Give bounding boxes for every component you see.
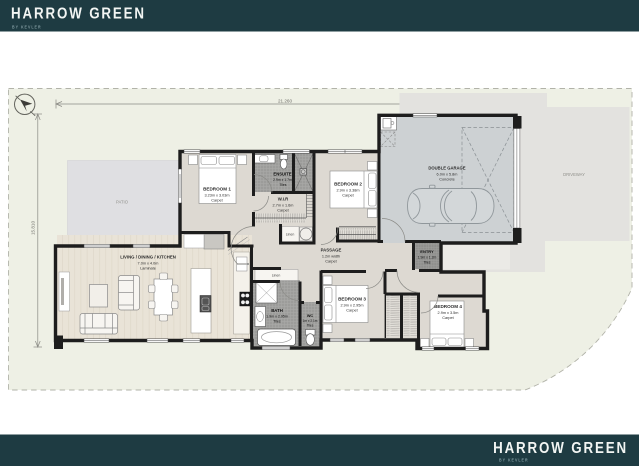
- svg-text:1.2m width: 1.2m width: [322, 254, 340, 258]
- svg-text:1.9m x 2.95m: 1.9m x 2.95m: [266, 315, 288, 319]
- svg-text:21.260: 21.260: [278, 99, 292, 104]
- svg-text:PASSAGE: PASSAGE: [321, 248, 342, 253]
- svg-text:Linen: Linen: [286, 233, 295, 237]
- svg-text:1m x 2.1m: 1m x 2.1m: [303, 319, 318, 323]
- svg-text:ENTRY: ENTRY: [420, 249, 434, 254]
- svg-text:BEDROOM 3: BEDROOM 3: [338, 297, 366, 302]
- svg-text:BEDROOM 1: BEDROOM 1: [203, 187, 231, 192]
- svg-text:WC: WC: [307, 314, 314, 318]
- svg-text:W.I.R: W.I.R: [278, 197, 289, 202]
- svg-text:Carpet: Carpet: [346, 309, 358, 313]
- svg-text:7.0m x 4.0m: 7.0m x 4.0m: [138, 262, 159, 266]
- svg-text:Carpet: Carpet: [325, 259, 337, 263]
- svg-text:HARROW GREEN: HARROW GREEN: [493, 440, 628, 457]
- svg-text:ENSUITE: ENSUITE: [273, 172, 291, 177]
- svg-text:2.9m x 1.7m: 2.9m x 1.7m: [273, 178, 292, 182]
- svg-text:BEDROOM 4: BEDROOM 4: [434, 304, 462, 309]
- svg-text:Carpet: Carpet: [342, 194, 354, 198]
- svg-text:Tiles: Tiles: [273, 319, 281, 323]
- svg-text:2.9m x 3.5m: 2.9m x 3.5m: [438, 311, 459, 315]
- svg-text:BY KEVLER: BY KEVLER: [12, 24, 42, 30]
- svg-text:Carpet: Carpet: [211, 199, 223, 203]
- svg-text:Linen: Linen: [272, 274, 281, 278]
- svg-text:2.9m x 2.95m: 2.9m x 2.95m: [340, 304, 363, 308]
- svg-text:Tiles: Tiles: [279, 183, 286, 187]
- svg-text:Concrete: Concrete: [439, 178, 454, 182]
- svg-text:BEDROOM 2: BEDROOM 2: [334, 182, 362, 187]
- svg-text:Carpet: Carpet: [277, 209, 289, 213]
- svg-text:LIVING / DINING / KITCHEN: LIVING / DINING / KITCHEN: [120, 255, 176, 260]
- svg-text:PATIO: PATIO: [116, 200, 129, 205]
- svg-text:Carpet: Carpet: [442, 316, 454, 320]
- svg-text:15.810: 15.810: [31, 221, 36, 235]
- svg-text:1.9m x 1.2m: 1.9m x 1.2m: [418, 256, 437, 260]
- svg-text:Tiles: Tiles: [307, 324, 314, 328]
- svg-text:Laminate: Laminate: [140, 267, 156, 271]
- svg-text:Tiles: Tiles: [423, 260, 430, 264]
- svg-text:3.23m x 3.03m: 3.23m x 3.03m: [204, 194, 229, 198]
- svg-text:BATH: BATH: [271, 308, 283, 313]
- svg-text:2.9m x 3.38m: 2.9m x 3.38m: [336, 189, 359, 193]
- svg-text:DOUBLE GARAGE: DOUBLE GARAGE: [428, 166, 465, 171]
- svg-text:6.0m x 5.8m: 6.0m x 5.8m: [437, 173, 458, 177]
- svg-text:BY KEVLER: BY KEVLER: [499, 457, 529, 463]
- svg-text:2.7m x 1.6m: 2.7m x 1.6m: [273, 204, 294, 208]
- svg-text:DRIVEWAY: DRIVEWAY: [563, 172, 585, 177]
- svg-text:HARROW GREEN: HARROW GREEN: [11, 6, 146, 23]
